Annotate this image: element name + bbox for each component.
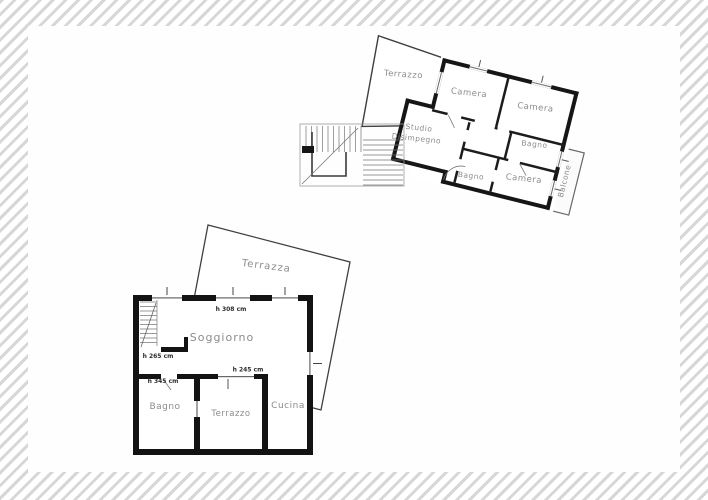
height-annotation-soggiorno: h 308 cm — [216, 306, 247, 313]
wall-segment — [177, 374, 196, 379]
wall-segment — [194, 417, 200, 455]
door-sill — [196, 401, 197, 417]
window-sill — [216, 297, 250, 298]
window-tick — [313, 363, 322, 364]
stairwell — [300, 124, 404, 186]
window-sill — [218, 376, 254, 377]
wall-segment — [200, 374, 218, 379]
floorplan-drawing: Terrazzo Camera Camera Bagno Studio Disi… — [0, 0, 708, 500]
lower-floor-plan: Terrazza — [133, 225, 350, 455]
window-sill — [272, 297, 298, 298]
wall-segment — [262, 374, 268, 455]
room-label-soggiorno: Soggiorno — [190, 331, 255, 344]
window-tick — [285, 287, 286, 295]
window-sill — [152, 297, 182, 298]
height-annotation-bagno: h 345 cm — [148, 378, 179, 385]
stair-treads-upper — [306, 126, 361, 152]
wall-segment — [133, 449, 313, 455]
window-tick — [233, 287, 234, 295]
room-label-terrazzo: Terrazzo — [210, 409, 250, 419]
height-annotation-terrazzo: h 245 cm — [233, 367, 264, 374]
scanned-floorplan-page: Terrazzo Camera Camera Bagno Studio Disi… — [0, 0, 708, 500]
wall-segment — [184, 337, 188, 352]
room-label-bagno: Bagno — [149, 402, 180, 412]
window-sill — [309, 352, 310, 375]
wall-segment — [194, 374, 200, 401]
wall-segment — [133, 295, 139, 455]
wall-segment — [302, 146, 314, 153]
window-tick — [228, 379, 229, 389]
room-label-cucina: Cucina — [271, 401, 305, 411]
height-annotation-stairs: h 265 cm — [143, 353, 174, 360]
upper-floor-plan: Terrazzo Camera Camera Bagno Studio Disi… — [347, 35, 600, 217]
window-tick — [167, 287, 168, 295]
wall-segment — [161, 347, 188, 352]
